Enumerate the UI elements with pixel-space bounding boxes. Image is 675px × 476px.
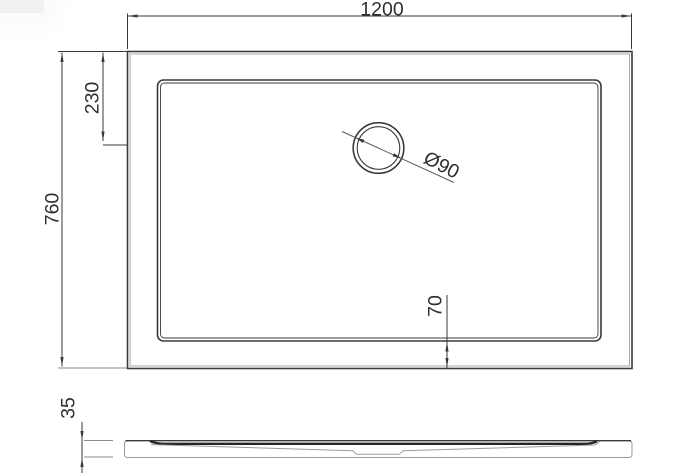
side-dimension-lines <box>80 422 113 473</box>
drawing-linework <box>0 0 675 476</box>
basin-rim-outer <box>158 80 602 341</box>
plan-view <box>128 52 633 369</box>
dim-label-overall-depth: 760 <box>43 193 63 226</box>
side-view <box>125 441 633 458</box>
dim-label-rim-to-edge: 70 <box>426 295 446 317</box>
technical-drawing-canvas: 1200 760 230 70 Ø90 35 <box>0 0 675 476</box>
dim-label-drain-from-top: 230 <box>83 82 103 115</box>
dim-label-overall-width: 1200 <box>360 0 403 20</box>
dim-label-tray-height: 35 <box>59 397 79 419</box>
